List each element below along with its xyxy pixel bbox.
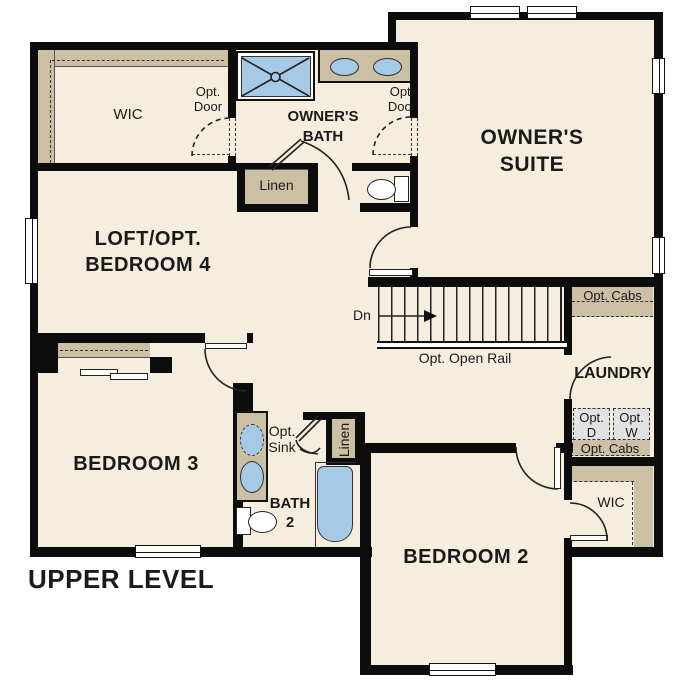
annotation-opt-door-bath: Opt. Door	[382, 84, 422, 115]
room-label-bath2: BATH 2	[256, 495, 324, 533]
annotation-linen-hall: Linen	[245, 177, 308, 193]
annotation-line: W	[613, 425, 650, 440]
annotation-line: Sink	[264, 439, 300, 455]
room-label-line: 2	[256, 514, 324, 533]
annotation-stairs-down: Dn	[348, 307, 376, 323]
annotation-opt-cabs-top: Opt. Cabs	[572, 288, 653, 303]
annotation-opt-open-rail: Opt. Open Rail	[398, 350, 532, 366]
room-label-bedroom2: BEDROOM 2	[366, 544, 566, 570]
page-title: UPPER LEVEL	[28, 564, 328, 595]
room-label-line: BATH	[253, 127, 393, 147]
owners-suite-door-arc	[370, 227, 411, 268]
room-label-owners-wic: WIC	[92, 106, 164, 123]
annotation-line: Opt.	[188, 84, 228, 99]
floor-plan: WIC Opt. Door OWNER'S BATH Linen Opt. Do…	[0, 0, 687, 687]
room-label-line: SUITE	[432, 151, 632, 178]
opt-door-wic-arc	[192, 118, 230, 156]
room-label-loft: LOFT/OPT. BEDROOM 4	[48, 226, 248, 278]
room-label-line: OWNER'S	[432, 124, 632, 151]
stairs-direction-arrowhead	[424, 310, 437, 322]
room-label-bedroom2-wic: WIC	[584, 494, 638, 510]
annotation-line: Door	[188, 99, 228, 114]
room-label-line: BATH	[256, 495, 324, 514]
room-label-bedroom3: BEDROOM 3	[36, 451, 236, 477]
annotation-line: Opt.	[264, 423, 300, 439]
room-label-line: OWNER'S	[253, 107, 393, 127]
room-label-line: LOFT/OPT.	[48, 226, 248, 252]
annotation-opt-door-wic: Opt. Door	[188, 84, 228, 115]
room-label-laundry: LAUNDRY	[570, 365, 656, 383]
bedroom3-door-arc	[205, 349, 247, 391]
room-label-owners-bath: OWNER'S BATH	[253, 107, 393, 148]
annotation-opt-dryer: Opt. D	[573, 410, 610, 441]
shower-drain	[271, 73, 280, 82]
annotation-linen-bath2: Linen	[336, 419, 352, 461]
bedroom2-door-arc	[516, 447, 558, 489]
annotation-line: Opt.	[613, 410, 650, 425]
annotation-line: D	[573, 425, 610, 440]
annotation-opt-washer: Opt. W	[613, 410, 650, 441]
owners-bath-door-arc	[301, 141, 349, 200]
annotation-line: Opt.	[382, 84, 422, 99]
annotation-opt-sink: Opt. Sink	[264, 423, 300, 455]
room-label-owners-suite: OWNER'S SUITE	[432, 124, 632, 179]
annotation-opt-cabs-bottom: Opt. Cabs	[570, 441, 650, 456]
annotation-line: Door	[382, 99, 422, 114]
room-label-line: BEDROOM 4	[48, 252, 248, 278]
annotation-line: Opt.	[573, 410, 610, 425]
